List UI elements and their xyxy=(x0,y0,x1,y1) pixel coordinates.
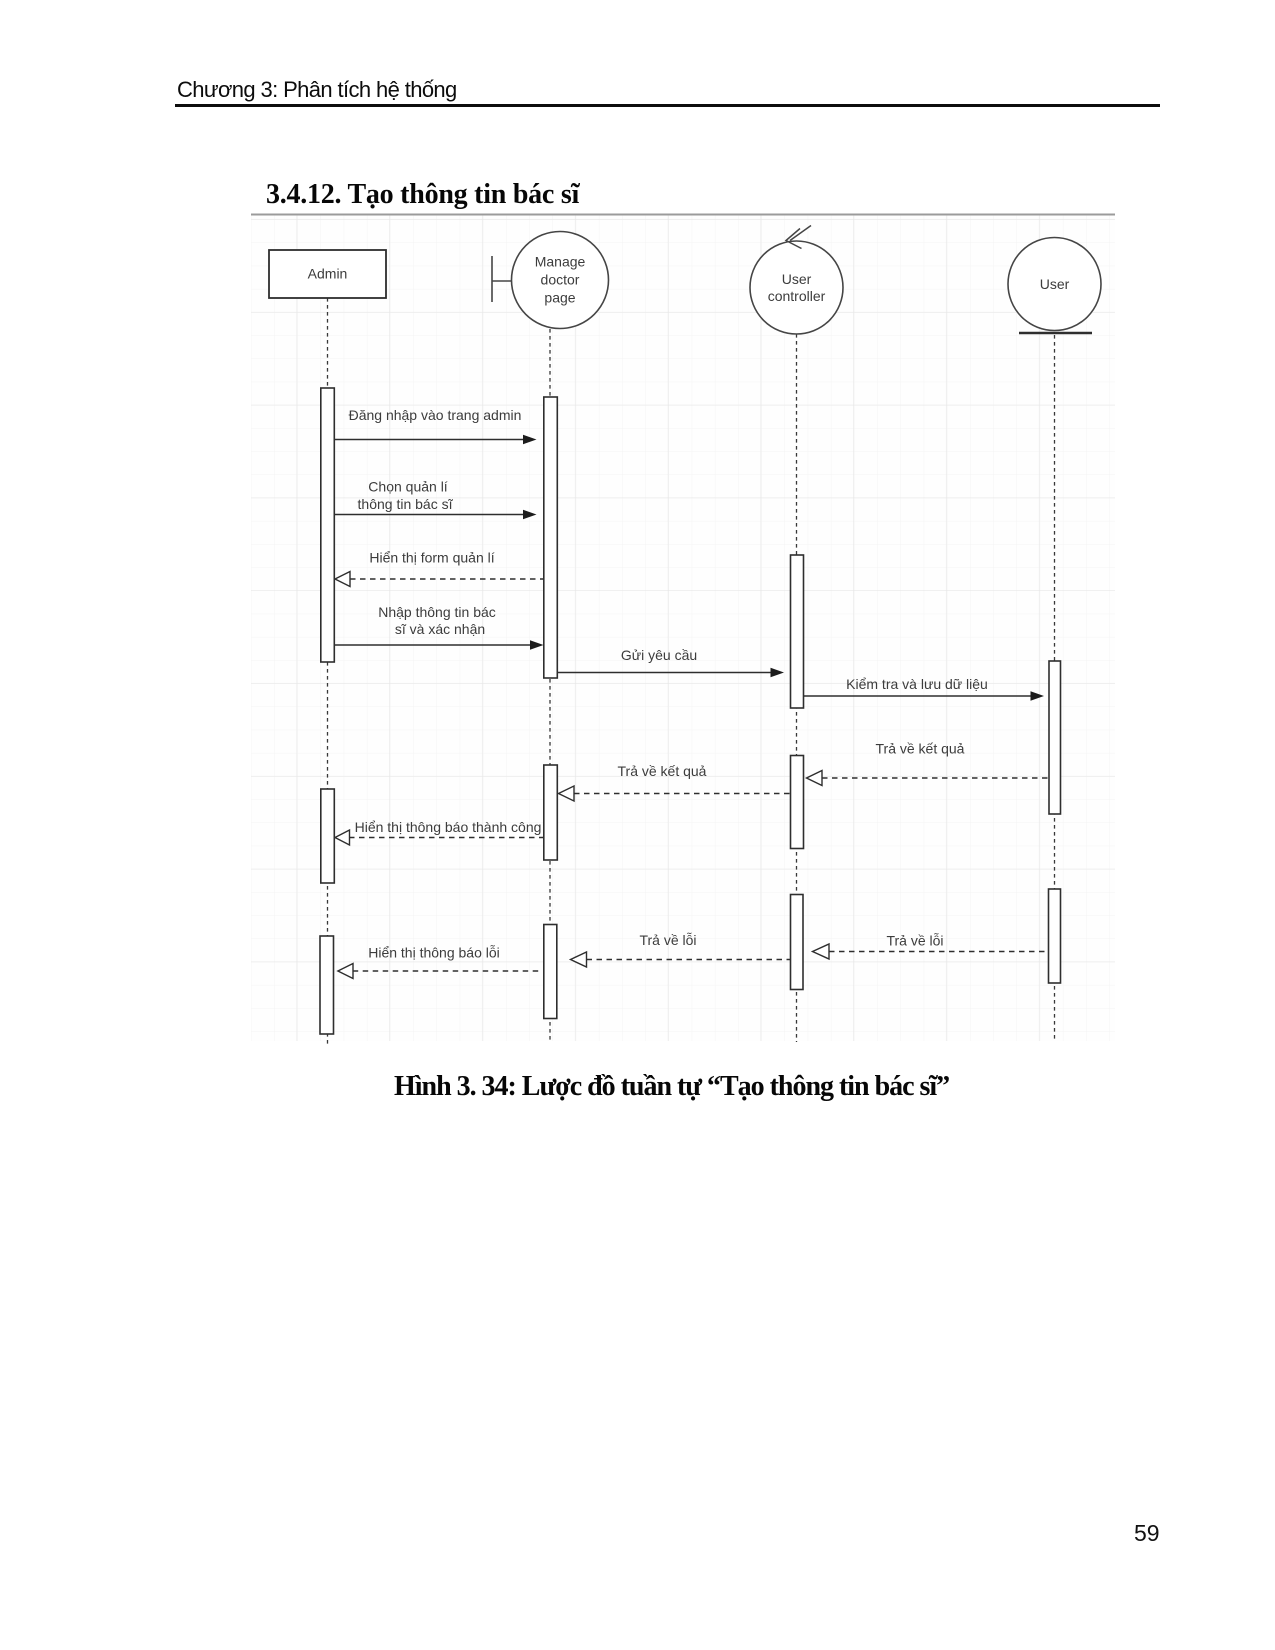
svg-text:Chọn quản lí: Chọn quản lí xyxy=(368,479,448,495)
svg-text:Admin: Admin xyxy=(308,266,348,282)
svg-text:User: User xyxy=(1040,276,1070,292)
svg-text:Manage: Manage xyxy=(535,254,586,270)
svg-text:thông tin bác sĩ: thông tin bác sĩ xyxy=(358,496,454,512)
svg-text:Đăng nhập vào trang admin: Đăng nhập vào trang admin xyxy=(349,407,522,423)
svg-text:Trả về lỗi: Trả về lỗi xyxy=(639,932,696,948)
svg-text:Trả về kết quả: Trả về kết quả xyxy=(618,763,707,779)
svg-text:Nhập thông tin bác: Nhập thông tin bác xyxy=(378,604,496,620)
svg-text:controller: controller xyxy=(768,288,826,304)
svg-text:page: page xyxy=(544,290,575,306)
svg-text:Hiển thị thông báo thành công: Hiển thị thông báo thành công xyxy=(355,819,542,835)
svg-text:Trả về lỗi: Trả về lỗi xyxy=(886,933,943,949)
svg-text:Kiểm tra và lưu dữ liệu: Kiểm tra và lưu dữ liệu xyxy=(846,676,988,692)
svg-text:Gửi yêu cầu: Gửi yêu cầu xyxy=(621,647,697,663)
svg-text:doctor: doctor xyxy=(541,272,580,288)
svg-text:Hiển thị thông báo lỗi: Hiển thị thông báo lỗi xyxy=(368,945,500,961)
svg-text:Hiển thị form quản lí: Hiển thị form quản lí xyxy=(369,550,494,566)
svg-text:Trả về kết quả: Trả về kết quả xyxy=(876,741,965,757)
svg-text:User: User xyxy=(782,271,812,287)
svg-text:sĩ và xác nhận: sĩ và xác nhận xyxy=(395,621,485,637)
